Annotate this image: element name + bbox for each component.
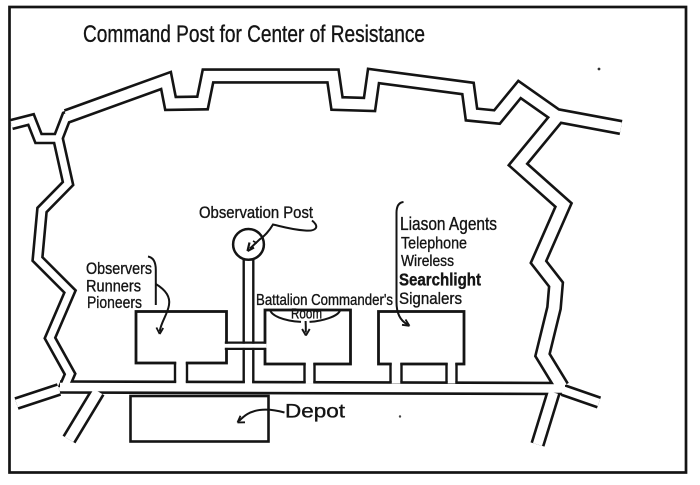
svg-text:Wireless: Wireless <box>401 253 454 270</box>
svg-text:Signalers: Signalers <box>399 289 462 308</box>
svg-text:Liason Agents: Liason Agents <box>400 214 497 234</box>
svg-text:Observation Post: Observation Post <box>199 204 313 222</box>
svg-text:Telephone: Telephone <box>401 234 467 253</box>
svg-text:Depot: Depot <box>285 402 346 423</box>
svg-text:Observers: Observers <box>86 259 152 278</box>
svg-text:Pioneers: Pioneers <box>87 293 142 312</box>
svg-text:Battalion Commander's: Battalion Commander's <box>256 292 393 309</box>
svg-text:Searchlight: Searchlight <box>399 270 481 290</box>
svg-text:Room: Room <box>291 307 322 323</box>
svg-text:Command Post for Center of Res: Command Post for Center of Resistance <box>83 21 425 48</box>
